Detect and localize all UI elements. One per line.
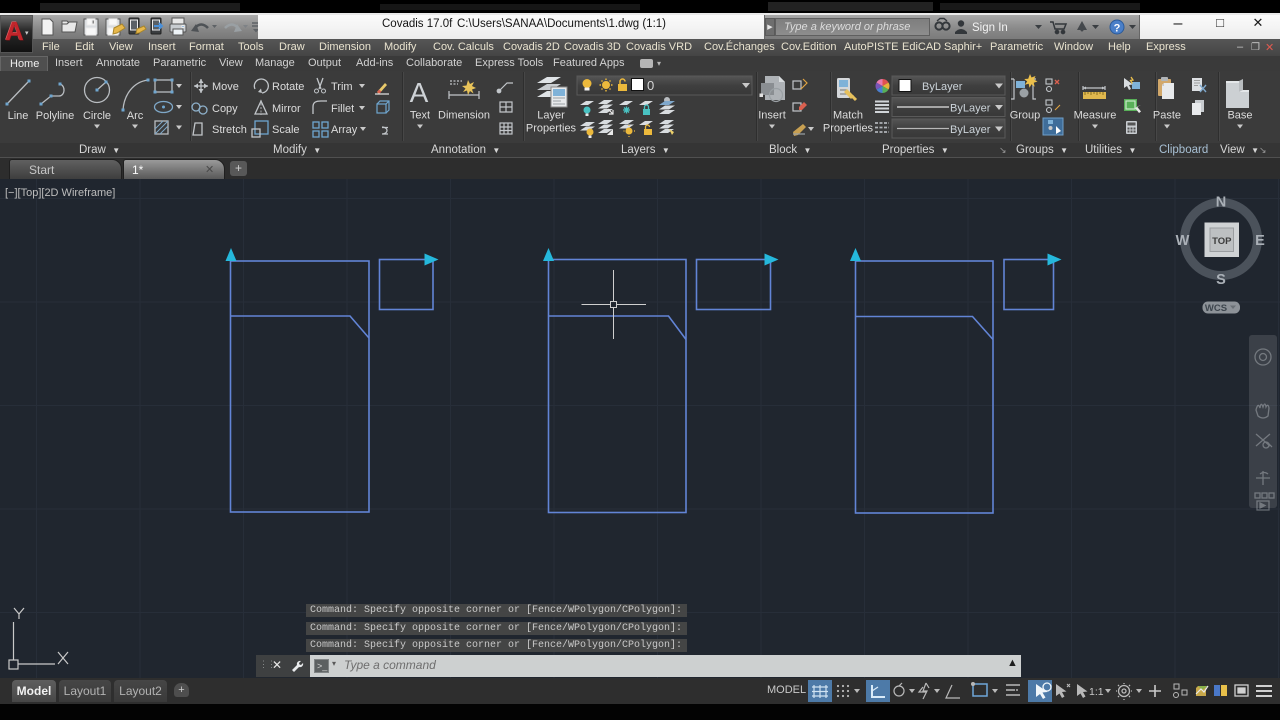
svg-text:Properties: Properties [526,123,577,135]
svg-text:ByLayer: ByLayer [950,124,991,136]
svg-text:Circle: Circle [83,110,111,122]
svg-text:Stretch: Stretch [212,124,247,136]
svg-text:Insert: Insert [758,110,786,122]
svg-text:1:1: 1:1 [1089,686,1104,698]
svg-text:Measure: Measure [1074,110,1117,122]
svg-text:E: E [1255,233,1265,249]
svg-text:S: S [1216,272,1226,288]
svg-text:WCS: WCS [1205,303,1227,314]
svg-text:Fillet: Fillet [331,103,354,115]
svg-text:Group: Group [1010,110,1041,122]
svg-text:Trim: Trim [331,81,353,93]
svg-text:Layer: Layer [537,110,565,122]
svg-text:Line: Line [8,110,29,122]
svg-text:ByLayer: ByLayer [950,103,991,115]
svg-text:Mirror: Mirror [272,103,301,115]
svg-text:Base: Base [1227,110,1252,122]
svg-text:Match: Match [833,110,863,122]
svg-text:Move: Move [212,81,239,93]
svg-text:Scale: Scale [272,124,300,136]
svg-text:ByLayer: ByLayer [922,81,963,93]
svg-text:Properties: Properties [823,123,874,135]
svg-text:A: A [410,77,429,108]
svg-text:Text: Text [410,110,430,122]
svg-text:Dimension: Dimension [438,110,490,122]
svg-text:TOP: TOP [1212,236,1232,247]
svg-text:W: W [1176,233,1190,249]
svg-text:Sign In: Sign In [972,22,1008,34]
svg-text:N: N [1216,195,1226,211]
svg-text:?: ? [1114,23,1121,35]
svg-text:0: 0 [647,78,654,93]
svg-text:Copy: Copy [212,103,238,115]
svg-text:Rotate: Rotate [272,81,304,93]
svg-text:Arc: Arc [127,110,144,122]
svg-text:Array: Array [331,124,358,136]
svg-text:Paste: Paste [1153,110,1181,122]
svg-text:Polyline: Polyline [36,110,75,122]
